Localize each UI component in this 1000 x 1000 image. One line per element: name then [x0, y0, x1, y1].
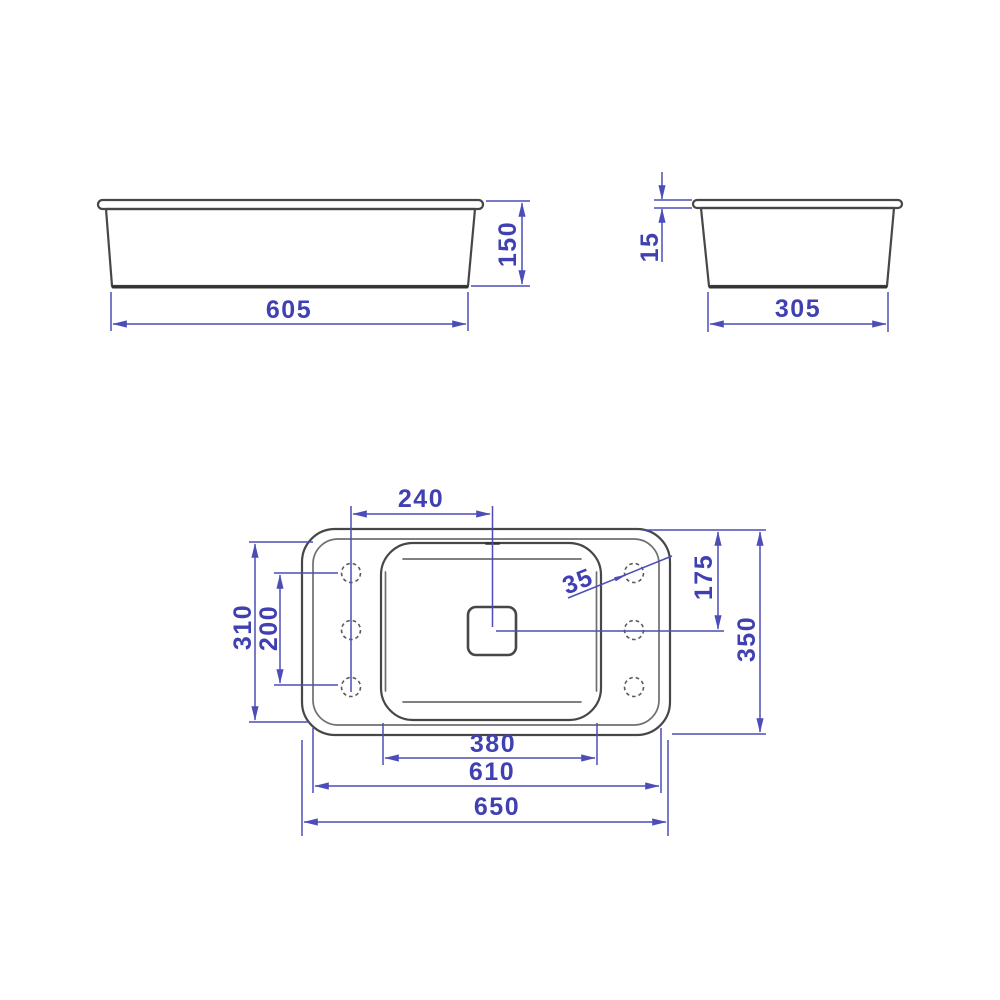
- dim-front-height-label: 150: [494, 221, 522, 267]
- side-body-outline: [701, 208, 894, 286]
- dimension-front-height: 150: [471, 201, 530, 286]
- plan-view: 240 310 200 35 175: [229, 485, 766, 836]
- side-view: 15 305: [636, 172, 902, 332]
- dim-hole-diameter-label: 35: [558, 563, 597, 601]
- dim-drain-offset-label: 240: [398, 485, 444, 513]
- dimension-front-width: 605: [111, 292, 468, 331]
- dimension-side-width: 305: [708, 292, 888, 332]
- dim-overall-width-label: 650: [474, 793, 520, 821]
- dimension-side-rim-thickness: 15: [636, 172, 692, 262]
- dim-center-offset-label: 175: [690, 554, 718, 600]
- side-rim-outline: [693, 200, 902, 208]
- dim-bowl-depth-label: 310: [229, 604, 257, 650]
- dim-bowl-width-label: 380: [470, 730, 516, 758]
- dim-side-width-label: 305: [775, 295, 821, 323]
- dimension-overall-depth: 350: [672, 532, 766, 734]
- leader-arrowhead: [614, 575, 627, 582]
- dim-side-rim-thickness-label: 15: [636, 232, 664, 263]
- front-rim-outline: [98, 200, 483, 209]
- sink-dimension-drawing: 605 150 15 305: [0, 0, 1000, 1000]
- dimension-drain-offset: 240: [353, 485, 490, 514]
- dimension-center-offset: 175: [644, 530, 766, 629]
- dimension-hole-span: 200: [255, 573, 338, 685]
- hole-right-top: [625, 564, 644, 583]
- hole-right-bottom: [625, 678, 644, 697]
- dim-rim-width-label: 610: [469, 758, 515, 786]
- dim-overall-depth-label: 350: [733, 616, 761, 662]
- leader-hole-diameter: 35: [558, 556, 672, 600]
- front-view: 605 150: [98, 200, 530, 331]
- dim-front-width-label: 605: [266, 296, 312, 324]
- dim-hole-span-label: 200: [255, 605, 283, 651]
- hole-right-middle: [625, 621, 644, 640]
- front-body-outline: [106, 209, 475, 286]
- technical-drawing-canvas: 605 150 15 305: [0, 0, 1000, 1000]
